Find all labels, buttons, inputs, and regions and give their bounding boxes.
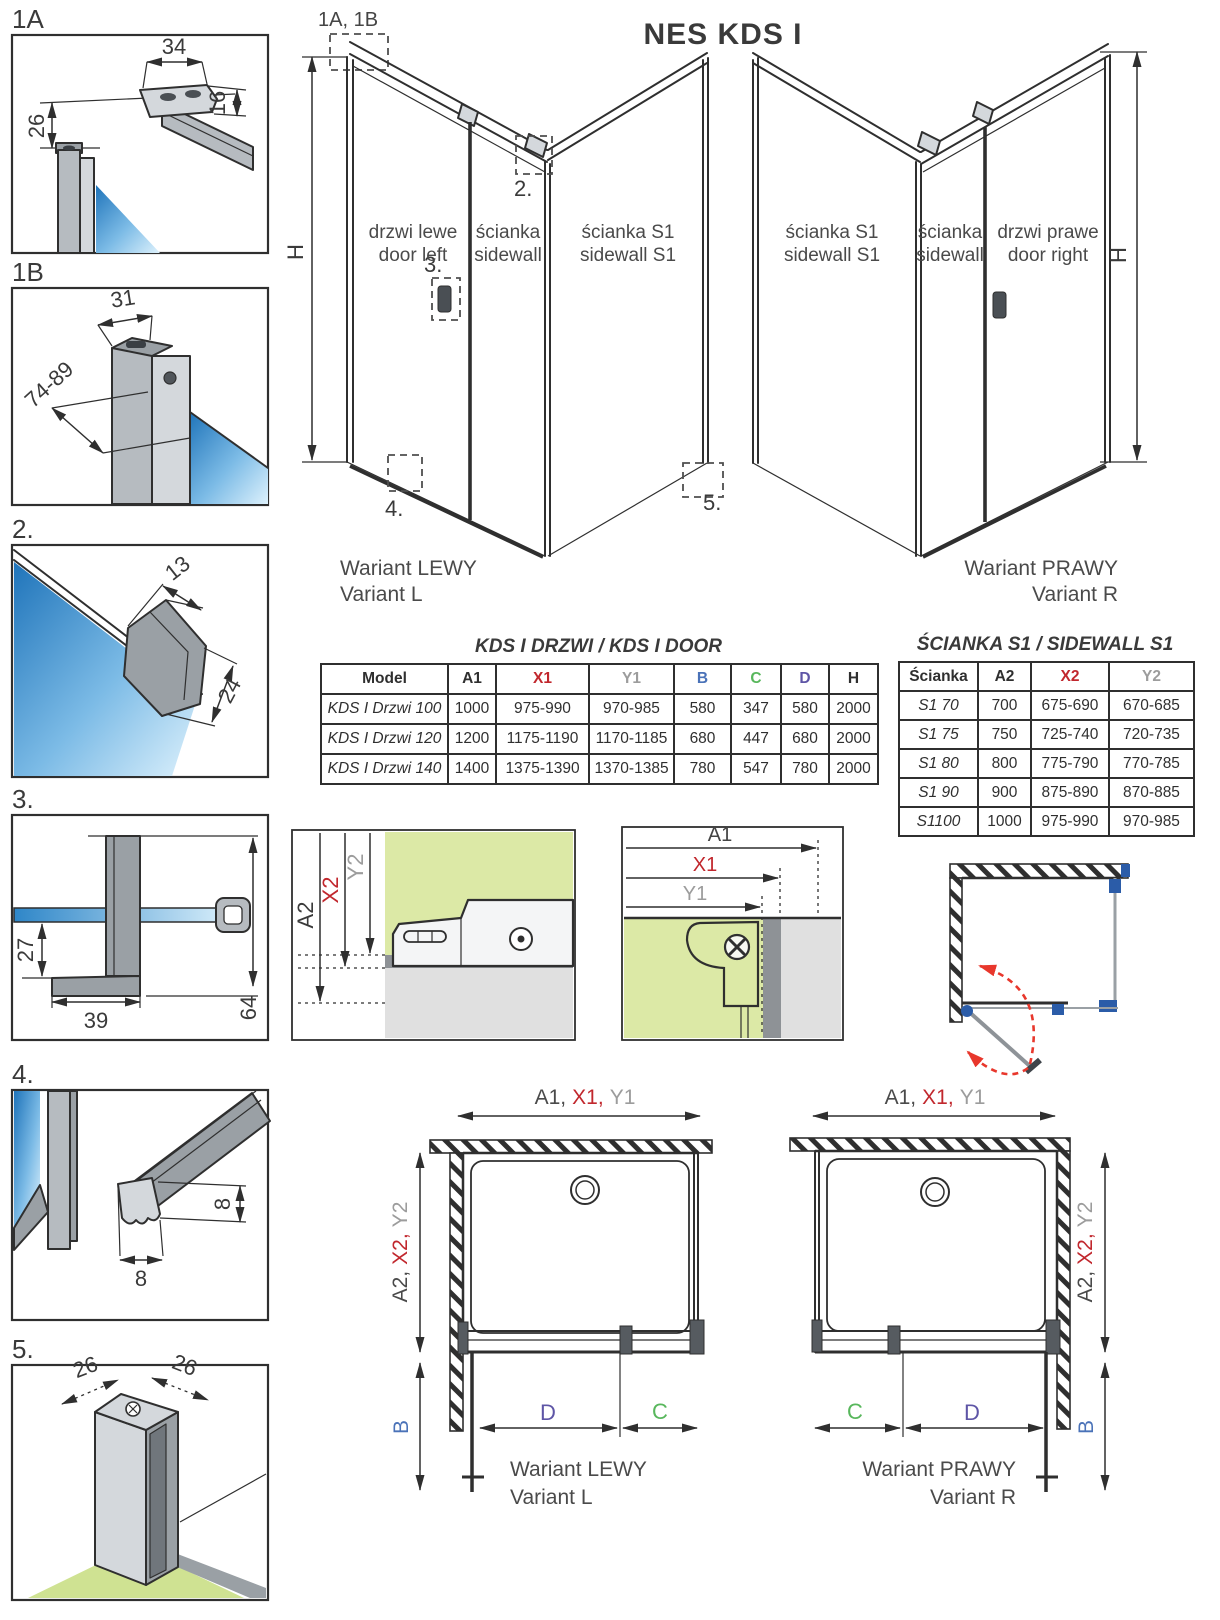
wall-left: [450, 1153, 463, 1431]
cell: 2000: [829, 724, 878, 754]
cell: 870-885: [1109, 778, 1194, 807]
model-name: KDS I Drzwi 100: [321, 694, 448, 724]
detail-1b-drawing: 1B 31 74-89: [12, 257, 268, 505]
plan-top-dim: A1,X1,Y1: [535, 1086, 636, 1109]
cell: 780: [674, 754, 731, 784]
cell: 580: [674, 694, 731, 724]
marker-2: 2.: [514, 176, 532, 201]
cell: 1200: [448, 724, 496, 754]
detail-4-drawing: 4. 8 8: [12, 1059, 270, 1320]
dim-34: 34: [162, 34, 186, 59]
marker-4: 4.: [385, 496, 403, 521]
detail-1a-drawing: 1A 34 16 26: [12, 4, 268, 253]
cell: 750: [978, 720, 1031, 749]
door-left-label-en: door left: [379, 245, 448, 266]
cell: 975-990: [496, 694, 589, 724]
sidewall-size-table: Ścianka A2 X2 Y2 S1 70 700 675-690 670-6…: [898, 661, 1195, 837]
cell: 447: [731, 724, 781, 754]
cell: 775-790: [1031, 749, 1109, 778]
dim-64: 64: [236, 996, 261, 1020]
door-left-label-pl: drzwi lewe: [369, 222, 458, 243]
wall-top: [790, 1138, 1070, 1151]
model-name: S1100: [899, 807, 978, 836]
dim-x2: X2,: [389, 1233, 412, 1265]
col-x2: X2: [1031, 662, 1109, 691]
cell: 2000: [829, 754, 878, 784]
dim-y2: Y2: [389, 1202, 412, 1228]
wall: [781, 918, 841, 1038]
dim-a2: A2,: [1074, 1271, 1097, 1303]
threshold-rail: [923, 466, 1106, 557]
variant-right-caption-pl: Wariant PRAWY: [862, 1458, 1016, 1481]
plan-top-dim: A1,X1,Y1: [885, 1086, 986, 1109]
door-handle: [993, 292, 1006, 318]
dim-d: D: [964, 1400, 980, 1425]
cell: 347: [731, 694, 781, 724]
cell: 970-985: [589, 694, 674, 724]
dim-a1: A1: [708, 824, 732, 846]
cell: 1400: [448, 754, 496, 784]
sidewall-s1-label-pl: ścianka S1: [582, 222, 675, 243]
ref-1a-1b-label: 1A, 1B: [318, 9, 378, 31]
col-model: Model: [321, 664, 448, 694]
threshold-rail: [350, 466, 543, 557]
swing-arrow-in: [980, 966, 1034, 1064]
shower-tray: [471, 1161, 689, 1333]
table-row: KDS I Drzwi 100 1000 975-990 970-985 580…: [321, 694, 878, 724]
detail-4-label: 4.: [12, 1059, 34, 1089]
dim-a1: A1,: [535, 1086, 567, 1109]
dim-8-height: 8: [210, 1198, 235, 1210]
dim-y1: Y1: [960, 1086, 986, 1109]
dim-16: 16: [205, 91, 230, 115]
dim-x2: X2,: [1074, 1233, 1097, 1265]
table-row: S1 80 800 775-790 770-785: [899, 749, 1194, 778]
dim-y1: Y1: [683, 883, 707, 905]
cell: 675-690: [1031, 691, 1109, 720]
cell: 970-985: [1109, 807, 1194, 836]
cell: 1170-1185: [589, 724, 674, 754]
pivot-point: [961, 1005, 973, 1017]
cell: 547: [731, 754, 781, 784]
table-row: KDS I Drzwi 140 1400 1375-1390 1370-1385…: [321, 754, 878, 784]
door-size-table: Model A1 X1 Y1 B C D H KDS I Drzwi 100 1…: [320, 663, 879, 785]
wall-top: [430, 1140, 712, 1153]
section-wall-profile: A2 X2 Y2: [292, 830, 575, 1040]
cell: 875-890: [1031, 778, 1109, 807]
sidewall-label-en: sidewall: [916, 245, 984, 266]
cell: 800: [978, 749, 1031, 778]
detail-2-label: 2.: [12, 514, 34, 544]
col-x1: X1: [496, 664, 589, 694]
rail-clamp: [620, 1326, 632, 1354]
plan-side-dim: A2,X2,Y2: [1074, 1202, 1097, 1303]
wall-profile-strip: [763, 918, 781, 1038]
sidewall-label-pl: ścianka: [476, 222, 541, 243]
page-title: NES KDS I: [598, 18, 848, 52]
sidewall-s1-label-en: sidewall S1: [580, 245, 676, 266]
cell: 725-740: [1031, 720, 1109, 749]
col-h: H: [829, 664, 878, 694]
drain-icon: [571, 1176, 599, 1204]
dim-x2: X2: [318, 877, 343, 904]
height-dim-label: H: [1106, 247, 1131, 263]
variant-left-caption-en: Variant L: [510, 1486, 593, 1509]
col-scianka: Ścianka: [899, 662, 978, 691]
corner-profile: [95, 1412, 146, 1585]
detail-2-drawing: 2. 13 24: [12, 514, 268, 777]
col-c: C: [731, 664, 781, 694]
variant-left-caption-en: Variant L: [340, 583, 423, 606]
door-right-label-pl: drzwi prawe: [997, 222, 1098, 243]
dim-y1: Y1: [610, 1086, 636, 1109]
height-dim-label: H: [283, 244, 308, 260]
sidewall-label-pl: ścianka: [918, 222, 983, 243]
dim-d: D: [540, 1400, 556, 1425]
dim-b: B: [1075, 1420, 1098, 1434]
dim-x1: X1,: [572, 1086, 604, 1109]
drain-icon: [921, 1178, 949, 1206]
table-row: S1 75 750 725-740 720-735: [899, 720, 1194, 749]
col-a2: A2: [978, 662, 1031, 691]
dim-27: 27: [13, 938, 38, 962]
variant-right-caption-pl: Wariant PRAWY: [964, 557, 1118, 580]
plan-side-dim: A2,X2,Y2: [389, 1202, 412, 1303]
cell: 1000: [978, 807, 1031, 836]
dim-x1: X1,: [922, 1086, 954, 1109]
sidewall-table-title: ŚCIANKA S1 / SIDEWALL S1: [880, 634, 1210, 656]
cell: 1370-1385: [589, 754, 674, 784]
plan-view-right-variant: A1,X1,Y1 A2,X2,Y2 B C D Wariant PRAWY Va…: [790, 1086, 1105, 1509]
col-y1: Y1: [589, 664, 674, 694]
dim-y2: Y2: [1074, 1202, 1097, 1228]
table-row: S1 90 900 875-890 870-885: [899, 778, 1194, 807]
col-b: B: [674, 664, 731, 694]
sidewall-s1-label-pl: ścianka S1: [786, 222, 879, 243]
variant-right-caption-en: Variant R: [930, 1486, 1016, 1509]
dim-26: 26: [24, 114, 49, 138]
variant-left-caption-pl: Wariant LEWY: [510, 1458, 647, 1481]
technical-sheet: 1A 34 16 26 1B: [0, 0, 1220, 1620]
sidewall-label-en: sidewall: [474, 245, 542, 266]
door-handle: [438, 286, 451, 312]
table-header-row: Ścianka A2 X2 Y2: [899, 662, 1194, 691]
model-name: S1 70: [899, 691, 978, 720]
marker-5: 5.: [703, 490, 721, 515]
cell: 1375-1390: [496, 754, 589, 784]
door-table-title: KDS I DRZWI / KDS I DOOR: [320, 636, 877, 658]
detail-1a-label: 1A: [12, 4, 44, 34]
cell: 670-685: [1109, 691, 1194, 720]
variant-left-caption-pl: Wariant LEWY: [340, 557, 477, 580]
col-a1: A1: [448, 664, 496, 694]
dim-c: C: [847, 1399, 863, 1424]
dim-a2: A2,: [389, 1271, 412, 1303]
model-name: S1 75: [899, 720, 978, 749]
section-door-profile: A1 X1 Y1: [622, 824, 843, 1040]
dim-a1: A1,: [885, 1086, 917, 1109]
dim-a2: A2: [293, 902, 318, 929]
cell: 700: [978, 691, 1031, 720]
model-name: S1 80: [899, 749, 978, 778]
table-row: KDS I Drzwi 120 1200 1175-1190 1170-1185…: [321, 724, 878, 754]
shower-tray: [827, 1159, 1045, 1331]
dim-y2: Y2: [343, 854, 368, 881]
detail-3-drawing: 3. 27 39 64: [12, 784, 268, 1040]
rail-clamp: [888, 1326, 900, 1354]
cell: 770-785: [1109, 749, 1194, 778]
model-name: KDS I Drzwi 120: [321, 724, 448, 754]
detail-ref-box-1a1b: [330, 34, 388, 70]
door-right-label-en: door right: [1008, 245, 1089, 266]
dim-39: 39: [84, 1008, 108, 1033]
cell: 580: [781, 694, 829, 724]
wall-left: [950, 878, 962, 1022]
iso-view-left-variant: 1A, 1B H 2. 3. 4. 5. drzwi: [283, 9, 723, 606]
table-row: S1 70 700 675-690 670-685: [899, 691, 1194, 720]
cell: 720-735: [1109, 720, 1194, 749]
dim-c: C: [652, 1399, 668, 1424]
col-y2: Y2: [1109, 662, 1194, 691]
col-d: D: [781, 664, 829, 694]
iso-view-right-variant: H ścianka S1 sidewall S1 ścianka sidewal…: [753, 44, 1147, 606]
handle-bracket: [106, 836, 140, 976]
cell: 1175-1190: [496, 724, 589, 754]
dim-31: 31: [109, 284, 137, 313]
table-row: S1100 1000 975-990 970-985: [899, 807, 1194, 836]
table-header-row: Model A1 X1 Y1 B C D H: [321, 664, 878, 694]
cell: 680: [781, 724, 829, 754]
plan-view-left-variant: A1,X1,Y1 A2,X2,Y2 B D C Wariant LEWY Var…: [389, 1086, 712, 1509]
dim-x1: X1: [693, 854, 717, 876]
detail-3-label: 3.: [12, 784, 34, 814]
cell: 1000: [448, 694, 496, 724]
cell: 975-990: [1031, 807, 1109, 836]
cell: 900: [978, 778, 1031, 807]
detail-5-drawing: 5. 26 26: [12, 1334, 268, 1600]
dim-b: B: [390, 1420, 413, 1434]
cell: 780: [781, 754, 829, 784]
variant-right-caption-en: Variant R: [1032, 583, 1118, 606]
wall-top: [950, 864, 1128, 878]
model-name: KDS I Drzwi 140: [321, 754, 448, 784]
hinge-bracket: [1109, 879, 1121, 893]
cell: 680: [674, 724, 731, 754]
dim-8-width: 8: [135, 1266, 147, 1291]
detail-1b-label: 1B: [12, 257, 44, 287]
cell: 2000: [829, 694, 878, 724]
sidewall-s1-label-en: sidewall S1: [784, 245, 880, 266]
wall-right: [1057, 1151, 1070, 1429]
door-swing-schematic: [950, 864, 1130, 1074]
detail-5-label: 5.: [12, 1334, 34, 1364]
model-name: S1 90: [899, 778, 978, 807]
